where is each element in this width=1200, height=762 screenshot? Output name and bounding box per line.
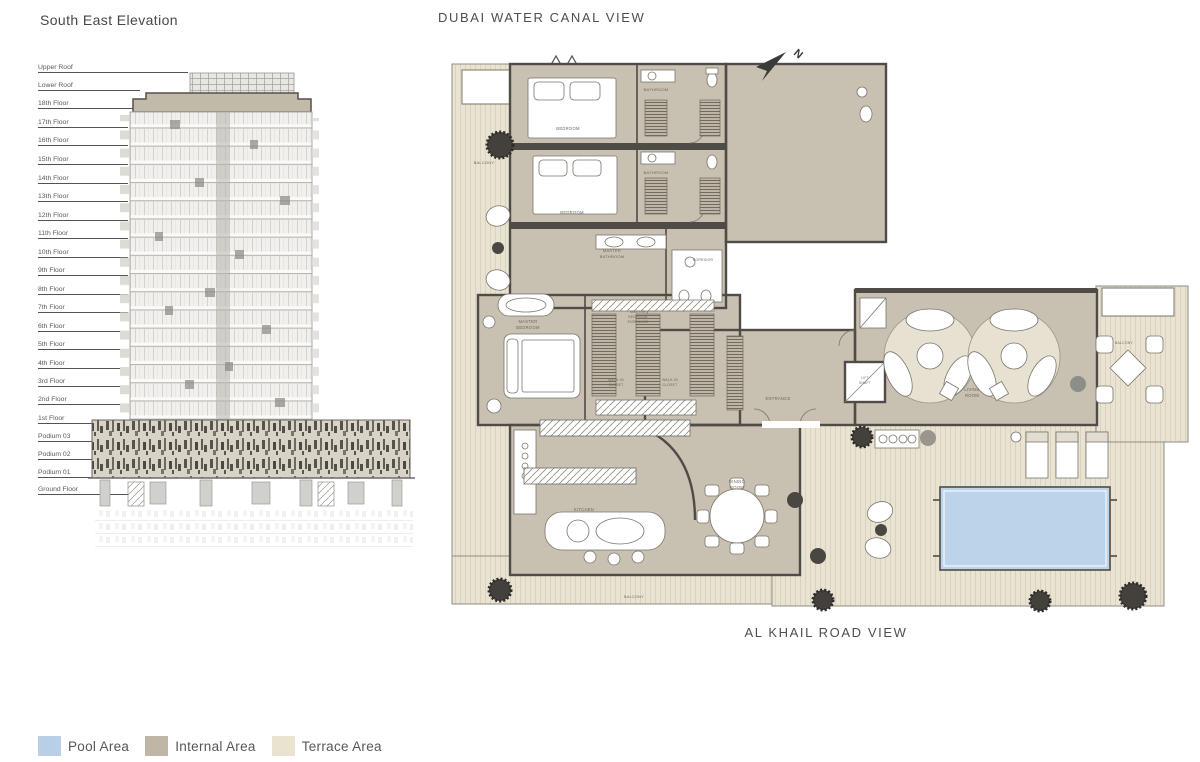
- label-master-bedroom: MASTER: [519, 319, 538, 324]
- label-lift-shaft: LIFT: [861, 376, 869, 380]
- label-bedroom-1: BEDROOM: [556, 126, 580, 131]
- svg-text:ROOM: ROOM: [965, 393, 979, 398]
- upper-roof-structure: [190, 73, 294, 93]
- svg-text:BATHROOM: BATHROOM: [600, 254, 625, 259]
- svg-text:SHAFT: SHAFT: [859, 381, 871, 385]
- internal-area-swatch: [145, 736, 168, 756]
- legend-item-terrace: Terrace Area: [272, 736, 382, 756]
- pool-area-label: Pool Area: [68, 739, 129, 754]
- legend-item-pool: Pool Area: [38, 736, 129, 756]
- entrance-closet: [727, 336, 743, 410]
- sheet: South East Elevation Upper Roof Lower Ro…: [0, 0, 1200, 762]
- podium: [92, 420, 410, 478]
- balcony-tabs-left: [120, 115, 130, 420]
- label-dining-room: DINING: [729, 479, 745, 484]
- ground-door: [318, 482, 334, 506]
- floor-plan-drawing: N BALCONY BEDROOM BATHROOM BEDROOM BATHR…: [440, 25, 1200, 625]
- label-balcony-bottom: BALCONY: [624, 595, 644, 599]
- label-entrance: ENTRANCE: [765, 396, 790, 401]
- terrace-area-label: Terrace Area: [302, 739, 382, 754]
- elevation-title: South East Elevation: [40, 12, 178, 28]
- plan-bottom-view-label: AL KHAIL ROAD VIEW: [660, 625, 992, 640]
- building-elevation-drawing: [85, 65, 430, 565]
- legend: Pool Area Internal Area Terrace Area: [38, 736, 398, 756]
- svg-text:CLOSET: CLOSET: [608, 383, 623, 387]
- plan-top-view-label: DUBAI WATER CANAL VIEW: [438, 10, 645, 25]
- label-bathroom-2: BATHROOM: [644, 170, 669, 175]
- label-corridor: CORRIDOR: [693, 258, 714, 262]
- svg-text:ENTRANCE: ENTRANCE: [628, 320, 649, 324]
- tower-core: [216, 112, 230, 420]
- label-balcony-right: BALCONY: [1115, 341, 1133, 345]
- svg-text:BEDROOM: BEDROOM: [628, 315, 647, 319]
- legend-item-internal: Internal Area: [145, 736, 255, 756]
- ground-door: [128, 482, 144, 506]
- pool: [933, 487, 1117, 570]
- label-walkin-closet-1: WALK-IN: [608, 378, 624, 382]
- svg-text:N: N: [791, 47, 805, 61]
- svg-text:BEDROOM: BEDROOM: [516, 325, 540, 330]
- svg-text:CLOSET: CLOSET: [662, 383, 677, 387]
- pool-area-swatch: [38, 736, 61, 756]
- entry-opening: [762, 421, 820, 428]
- bbq-counter: [875, 430, 936, 448]
- terrace-area-swatch: [272, 736, 295, 756]
- planter-box: [1102, 288, 1174, 316]
- ground-floor-columns: [100, 480, 402, 506]
- label-kitchen: KITCHEN: [574, 507, 594, 512]
- label-bedroom-2: BEDROOM: [560, 210, 584, 215]
- svg-text:ROOM: ROOM: [730, 485, 744, 490]
- label-balcony-left: BALCONY: [474, 160, 495, 165]
- internal-area-label: Internal Area: [175, 739, 255, 754]
- label-master-bathroom: MASTER: [603, 248, 621, 253]
- label-walkin-closet-2: WALK-IN: [662, 378, 678, 382]
- balcony-tabs-right: [312, 118, 320, 418]
- tower-cap: [133, 93, 311, 112]
- label-bathroom-1: BATHROOM: [644, 87, 669, 92]
- label-living-room: LIVING: [964, 387, 979, 392]
- label-master-bedroom-entrance: MASTER: [630, 310, 646, 314]
- below-ground-texture: [95, 509, 413, 547]
